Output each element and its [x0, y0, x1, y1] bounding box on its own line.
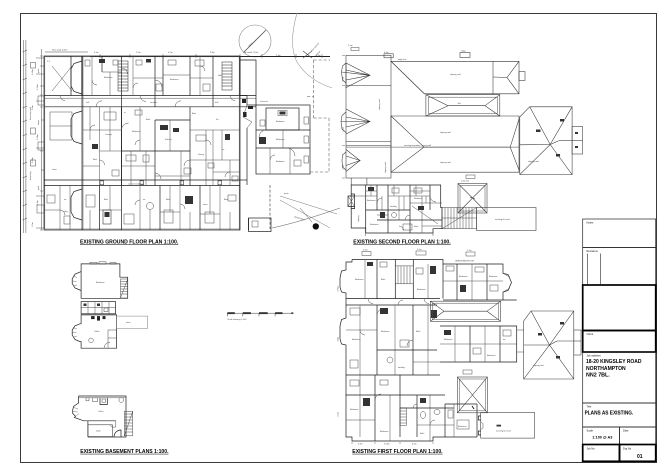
svg-text:2.9m flat: 2.9m flat	[461, 180, 469, 183]
svg-text:Bedroom: Bedroom	[132, 130, 141, 133]
svg-text:sloping roof: sloping roof	[378, 99, 381, 110]
svg-text:2.9m: 2.9m	[358, 444, 363, 446]
svg-text:Bedroom: Bedroom	[350, 408, 359, 411]
svg-text:Bedroom: Bedroom	[487, 354, 496, 357]
svg-text:Kit: Kit	[216, 118, 219, 121]
svg-text:5.2m: 5.2m	[338, 412, 340, 417]
svg-text:Bedroom: Bedroom	[444, 338, 453, 341]
svg-text:Scale: Scale	[587, 429, 594, 433]
svg-text:Job No: Job No	[587, 447, 596, 451]
svg-text:Bedroom: Bedroom	[355, 278, 364, 281]
svg-text:Revisions: Revisions	[587, 249, 599, 253]
svg-text:Cellar: Cellar	[98, 410, 104, 413]
svg-text:sloping roof: sloping roof	[450, 73, 461, 76]
svg-text:3.8m: 3.8m	[338, 337, 340, 342]
svg-text:Notes: Notes	[587, 221, 594, 225]
svg-text:hall: hall	[215, 102, 219, 104]
svg-text:2.7m: 2.7m	[467, 250, 472, 252]
svg-text:3.4m: 3.4m	[316, 55, 321, 57]
svg-text:Lounge: Lounge	[105, 134, 113, 136]
svg-text:6.1m: 6.1m	[37, 200, 39, 205]
svg-text:Bedroom: Bedroom	[458, 425, 467, 428]
svg-text:3.8m: 3.8m	[210, 52, 215, 54]
svg-text:Drg No: Drg No	[623, 447, 632, 451]
svg-text:Rear yard 6.35m: Rear yard 6.35m	[52, 49, 68, 52]
svg-text:Job address: Job address	[587, 354, 602, 358]
svg-text:Bedroom: Bedroom	[381, 330, 390, 333]
svg-text:Cellar: Cellar	[94, 330, 100, 333]
svg-text:Bedroom: Bedroom	[104, 76, 113, 79]
svg-text:4.1m: 4.1m	[417, 249, 422, 251]
svg-text:Kitchen: Kitchen	[165, 138, 173, 141]
svg-text:Scale drawing 1:100: Scale drawing 1:100	[227, 318, 247, 321]
svg-text:sloping roof: sloping roof	[533, 364, 544, 367]
svg-text:boundary: boundary	[29, 170, 32, 180]
svg-text:entrance: entrance	[260, 100, 269, 103]
svg-text:existing boundary - party wall: existing boundary - party wall	[404, 144, 431, 147]
svg-text:existing flat roof: existing flat roof	[496, 430, 511, 433]
svg-text:Bedroom: Bedroom	[367, 199, 376, 202]
svg-text:Bedroom: Bedroom	[380, 430, 389, 433]
svg-text:EXISTING BASEMENT PLANS 1:100.: EXISTING BASEMENT PLANS 1:100.	[80, 449, 169, 455]
svg-text:Bedroom: Bedroom	[370, 223, 379, 226]
svg-text:EXISTING GROUND FLOOR PLAN 1:1: EXISTING GROUND FLOOR PLAN 1:100.	[80, 239, 179, 245]
svg-text:EXISTING FIRST FLOOR PLAN 1:10: EXISTING FIRST FLOOR PLAN 1:100.	[352, 449, 443, 455]
svg-text:Bedroom: Bedroom	[489, 275, 498, 278]
svg-text:wc: wc	[222, 149, 225, 151]
svg-text:4.30m: 4.30m	[37, 134, 39, 140]
svg-text:Title: Title	[587, 405, 592, 409]
svg-text:sloping roof: sloping roof	[528, 160, 539, 163]
svg-text:NORTHAMPTON: NORTHAMPTON	[586, 366, 626, 372]
svg-text:wc: wc	[143, 199, 146, 201]
svg-text:Bedroom: Bedroom	[459, 275, 468, 278]
svg-text:4.95m: 4.95m	[37, 84, 39, 90]
svg-text:Client: Client	[587, 332, 594, 336]
svg-text:GREEN BEDROOM: GREEN BEDROOM	[455, 261, 474, 263]
svg-text:3.25m: 3.25m	[32, 157, 34, 163]
svg-text:covered walkway: covered walkway	[128, 182, 145, 185]
svg-text:4.95m: 4.95m	[338, 285, 340, 291]
svg-text:corridor: corridor	[150, 101, 157, 104]
svg-text:Site width 17.0m: Site width 17.0m	[243, 51, 259, 54]
svg-text:Bedroom: Bedroom	[414, 197, 423, 200]
svg-text:2.2m: 2.2m	[32, 222, 34, 227]
svg-text:2.45m: 2.45m	[32, 69, 34, 75]
svg-text:4.1m: 4.1m	[168, 52, 173, 54]
svg-text:ridge line: ridge line	[398, 58, 407, 61]
svg-text:PLANS AS EXISTING.: PLANS AS EXISTING.	[585, 411, 634, 417]
svg-text:Dining: Dining	[198, 154, 205, 156]
svg-text:3.6m: 3.6m	[363, 250, 368, 252]
svg-text:2.1m: 2.1m	[348, 45, 353, 47]
svg-text:Bedroom: Bedroom	[352, 338, 361, 341]
svg-text:landing: landing	[390, 206, 398, 208]
svg-text:landing: landing	[398, 367, 406, 369]
svg-text:Hall: Hall	[218, 75, 222, 77]
svg-text:existing flat roof: existing flat roof	[495, 218, 510, 221]
svg-text:sloping roof: sloping roof	[440, 131, 451, 134]
svg-text:3.2m: 3.2m	[384, 52, 389, 54]
svg-text:wc: wc	[64, 199, 67, 201]
svg-text:Bedroom: Bedroom	[276, 138, 285, 141]
svg-text:sloping roof: sloping roof	[384, 162, 387, 173]
svg-text:01: 01	[637, 454, 643, 460]
svg-text:sloping roof: sloping roof	[440, 161, 451, 164]
svg-text:Bedroom: Bedroom	[417, 288, 426, 291]
svg-text:sloping: sloping	[358, 215, 360, 222]
svg-text:Bedroom: Bedroom	[276, 120, 285, 123]
svg-text:18-20 KINGSLEY ROAD: 18-20 KINGSLEY ROAD	[586, 359, 642, 365]
svg-text:Bedroom: Bedroom	[276, 160, 285, 163]
svg-text:Bedroom: Bedroom	[96, 281, 105, 284]
svg-text:1:100 @ A3: 1:100 @ A3	[592, 436, 612, 440]
svg-text:0.9m: 0.9m	[94, 52, 99, 54]
svg-text:EXISTING SECOND FLOOR PLAN 1:1: EXISTING SECOND FLOOR PLAN 1:100.	[353, 240, 451, 246]
svg-text:NN2 7BL.: NN2 7BL.	[586, 373, 610, 379]
svg-text:4.2m: 4.2m	[412, 444, 417, 446]
svg-text:steps: steps	[37, 120, 40, 125]
svg-text:wc: wc	[503, 339, 506, 341]
svg-text:flat: flat	[458, 102, 461, 105]
svg-text:2.9m: 2.9m	[276, 55, 281, 57]
svg-text:5.3m: 5.3m	[136, 52, 141, 54]
svg-text:hall: hall	[86, 102, 90, 104]
svg-text:3.55m: 3.55m	[384, 444, 390, 446]
svg-text:1.8m: 1.8m	[32, 105, 34, 110]
svg-text:Bedroom: Bedroom	[170, 78, 179, 81]
svg-text:Date: Date	[623, 429, 629, 433]
